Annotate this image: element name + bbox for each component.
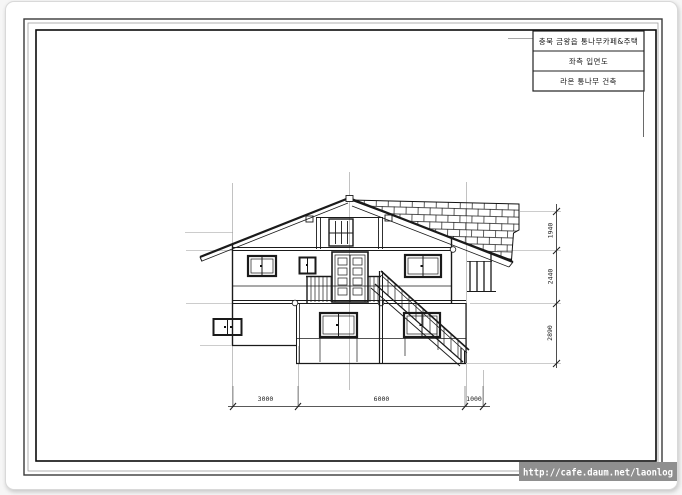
right-fence: [467, 253, 496, 292]
roof-right-eave-cap: [509, 262, 513, 267]
dimension-bottom: 3000 6000 1000: [228, 386, 490, 410]
grid-bubble-left: [292, 300, 298, 306]
stairs: [371, 271, 469, 366]
stair-handrail-lower: [381, 275, 467, 353]
balcony-railing: [306, 277, 381, 304]
dim-label-3000: 3000: [258, 395, 274, 403]
roof-left-slope: [200, 198, 349, 257]
title-block-company-name: 라온 통나무 건축: [560, 76, 617, 86]
dim-label-2890: 2890: [546, 325, 554, 341]
house-elevation: [200, 196, 519, 367]
stair-stringer-bottom: [371, 288, 460, 366]
stair-balusters: [388, 277, 458, 357]
ridge-cap: [346, 196, 353, 202]
scanned-drawing-sheet: 충북 금왕읍 통나무카페&주택 좌측 입면도 라온 통나무 건축: [0, 0, 682, 495]
title-block-project-name: 충북 금왕읍 통나무카페&주택: [539, 36, 638, 46]
dim-label-1000: 1000: [466, 395, 482, 403]
title-block: 충북 금왕읍 통나무카페&주택 좌측 입면도 라온 통나무 건축: [508, 31, 644, 137]
watermark: http://cafe.daum.net/laonlog: [519, 462, 677, 481]
entrance-door: [332, 252, 368, 302]
dim-label-6000: 6000: [374, 395, 390, 403]
watermark-url: http://cafe.daum.net/laonlog: [523, 468, 673, 479]
stair-stringer-top: [375, 284, 463, 362]
gable-attic: [306, 215, 392, 249]
grid-bubble-eave: [450, 247, 456, 253]
dim-label-1940: 1940: [547, 223, 555, 239]
dim-label-2440: 2440: [547, 269, 555, 285]
title-block-sheet-name: 좌측 입면도: [569, 56, 608, 66]
elevation-drawing-canvas: 충북 금왕읍 통나무카페&주택 좌측 입면도 라온 통나무 건축: [0, 0, 682, 495]
roof-left-soffit: [202, 203, 348, 261]
lower-windows: [214, 313, 441, 337]
dimension-right: 1940 2440 2890: [546, 204, 560, 368]
